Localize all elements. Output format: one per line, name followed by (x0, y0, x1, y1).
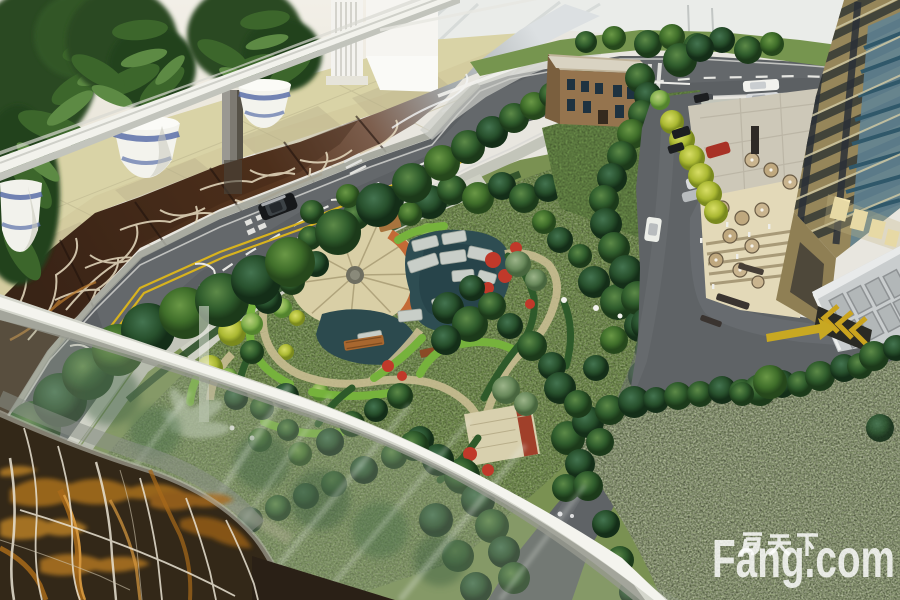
svg-text:Fang.com: Fang.com (712, 529, 895, 589)
